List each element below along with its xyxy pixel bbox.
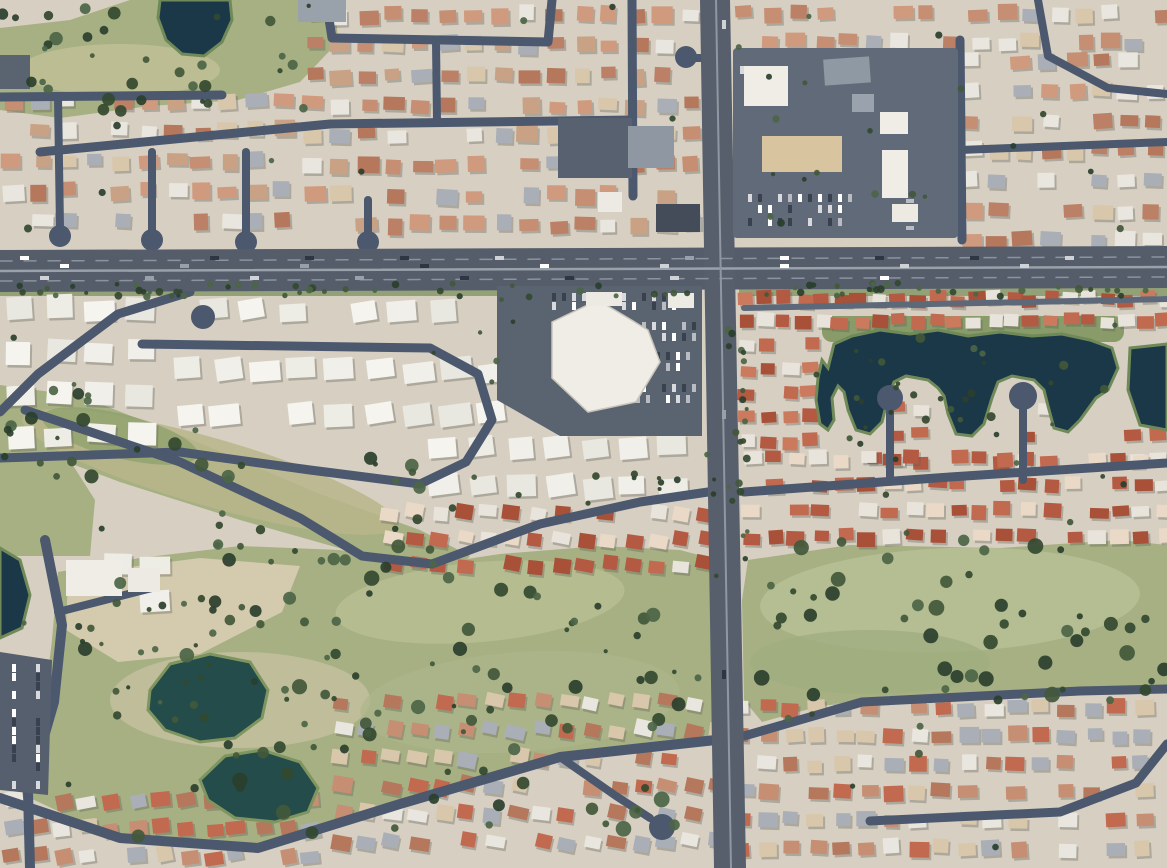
lake-right-main [816,330,1118,436]
map-viewport[interactable] [0,0,1167,868]
plaza-building-gray [823,56,871,85]
parking-top-left-edge [0,55,30,89]
plaza-building-tan [762,136,842,172]
clubhouse-building-1 [66,560,122,596]
store-building-gray [628,126,674,168]
satellite-map[interactable] [0,0,1167,868]
street-top-right-v [960,40,962,240]
plaza-building-white-3 [882,150,908,198]
parking-lot-gas-corner [558,118,632,178]
culdesac-bulb [675,46,697,68]
culdesac-bulb [1009,382,1037,410]
culdesac-bulb [191,305,215,329]
culdesac-bulb [141,229,163,251]
dark-building-nw-intersection [656,204,700,232]
plaza-building-white-4 [892,204,918,222]
clubhouse-building-2 [128,568,160,592]
culdesac-bulb [49,225,71,247]
parking-lot-clubhouse [0,652,52,795]
street-top-mid-v [436,42,437,122]
white-building-nw-intersection [598,192,622,212]
culdesac-bulb [877,385,903,411]
building-top-left-corner [298,0,346,22]
golf-fairway-patch [750,630,990,694]
plaza-building-white-1 [744,66,788,106]
plaza-building-gray-2 [852,94,874,112]
street-stub-1 [58,97,60,228]
plaza-building-white-2 [880,112,908,134]
